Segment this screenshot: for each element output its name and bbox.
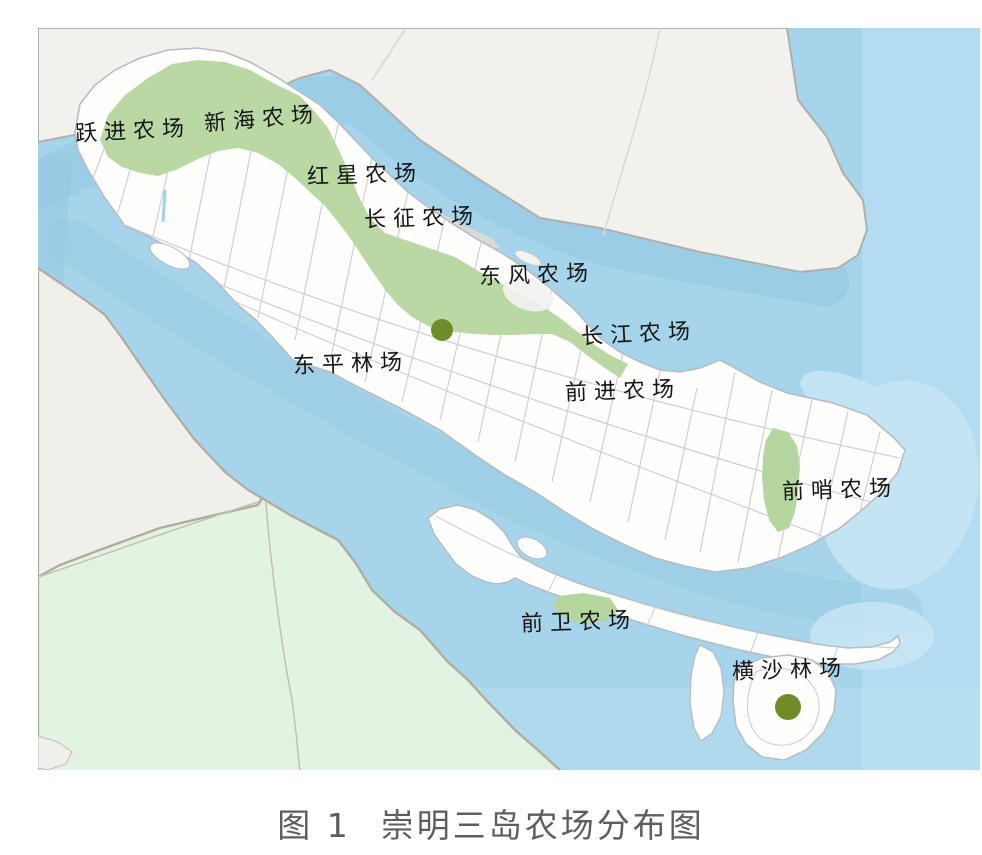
label-dongfeng-farm: 东风农场 xyxy=(479,261,596,290)
label-hengsha-forest: 横沙林场 xyxy=(732,656,849,685)
map-svg: 跃进农场 新海农场 红星农场 长征农场 东风农场 长江农场 前进农场 东平林场 … xyxy=(38,28,980,770)
figure-title: 崇明三岛农场分布图 xyxy=(381,806,705,845)
map-canvas: 跃进农场 新海农场 红星农场 长征农场 东风农场 长江农场 前进农场 东平林场 … xyxy=(38,28,980,770)
figure-caption: 图 1崇明三岛农场分布图 xyxy=(0,799,982,847)
label-dongping-forest: 东平林场 xyxy=(293,350,410,379)
label-qianwei-farm: 前卫农场 xyxy=(521,608,638,637)
figure-number: 图 1 xyxy=(277,806,351,845)
figure-page: 跃进农场 新海农场 红星农场 长征农场 东风农场 长江农场 前进农场 东平林场 … xyxy=(0,0,982,855)
label-hongxing-farm: 红星农场 xyxy=(307,161,424,190)
hengsha-forest-dot xyxy=(775,694,801,720)
label-qianshao-farm: 前哨农场 xyxy=(782,476,899,505)
label-qianjin-farm: 前进农场 xyxy=(565,377,682,406)
dongping-forest-dot xyxy=(431,319,453,341)
label-changzheng-farm: 长征农场 xyxy=(364,204,481,233)
